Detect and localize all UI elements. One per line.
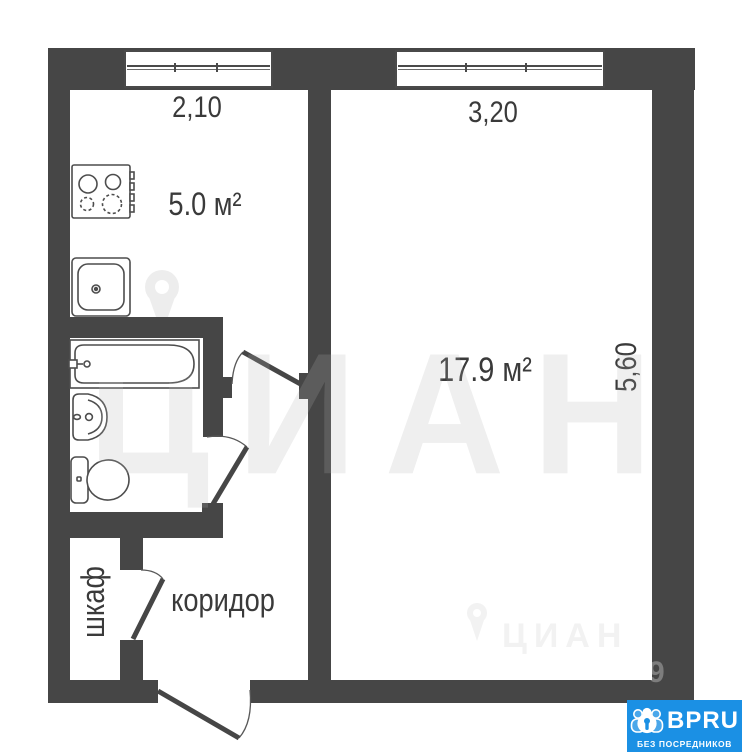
watermark-brand-small: ЦИАН xyxy=(502,619,628,653)
cian-pin-small-icon xyxy=(0,0,742,752)
bpru-badge: BPRU БЕЗ ПОСРЕДНИКОВ xyxy=(627,700,742,752)
watermark-faint-digits: 9 xyxy=(648,658,665,688)
pin-tail xyxy=(470,620,484,641)
badge-row: BPRU xyxy=(630,705,739,737)
badge-tagline-text: БЕЗ ПОСРЕДНИКОВ xyxy=(637,739,732,749)
badge-brand-text: BPRU xyxy=(667,709,739,733)
floor-plan: ЦИАН xyxy=(0,0,742,752)
pin-hole xyxy=(473,609,481,617)
people-group-icon xyxy=(630,705,664,737)
